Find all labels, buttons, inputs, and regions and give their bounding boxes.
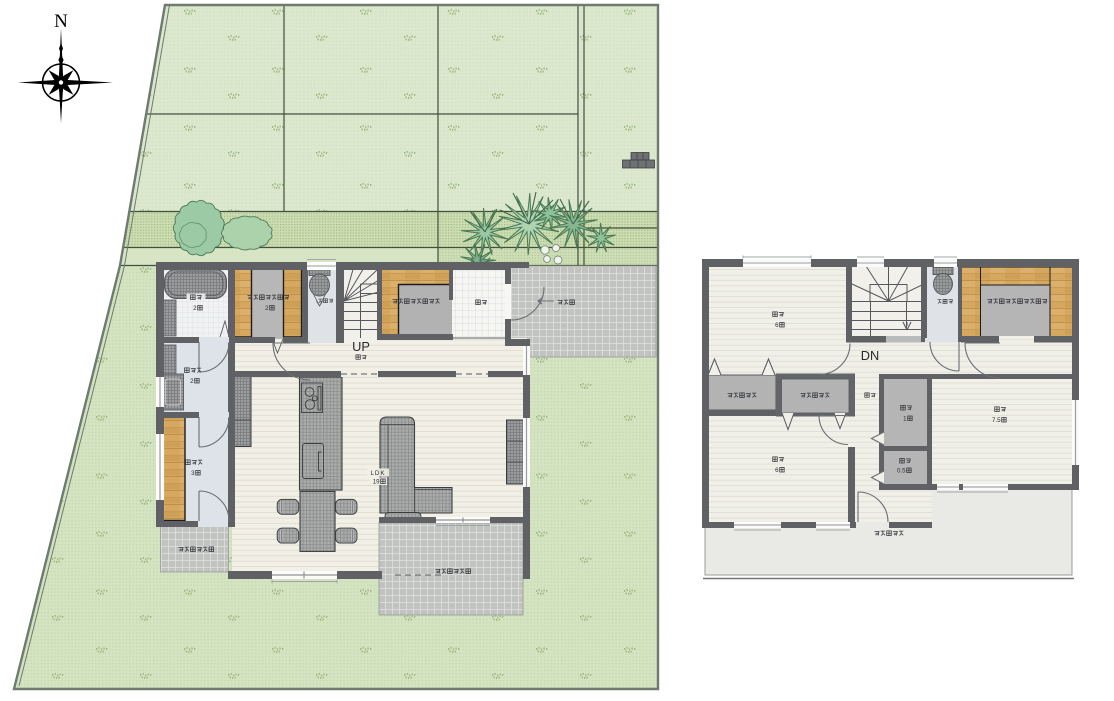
- svg-text:1: 1: [903, 416, 907, 423]
- svg-text:2: 2: [265, 305, 269, 312]
- svg-text:2: 2: [190, 378, 194, 385]
- svg-text:6: 6: [775, 467, 779, 474]
- svg-text:2: 2: [193, 305, 197, 312]
- svg-text:DN: DN: [861, 348, 879, 363]
- svg-text:N: N: [54, 11, 68, 32]
- svg-text:19: 19: [373, 479, 380, 486]
- svg-text:0.5: 0.5: [897, 468, 906, 475]
- svg-text:7.5: 7.5: [992, 417, 1001, 424]
- svg-text:6: 6: [775, 322, 779, 329]
- svg-text:UP: UP: [352, 339, 370, 354]
- svg-text:3: 3: [191, 470, 195, 477]
- svg-text:LDK: LDK: [370, 470, 385, 477]
